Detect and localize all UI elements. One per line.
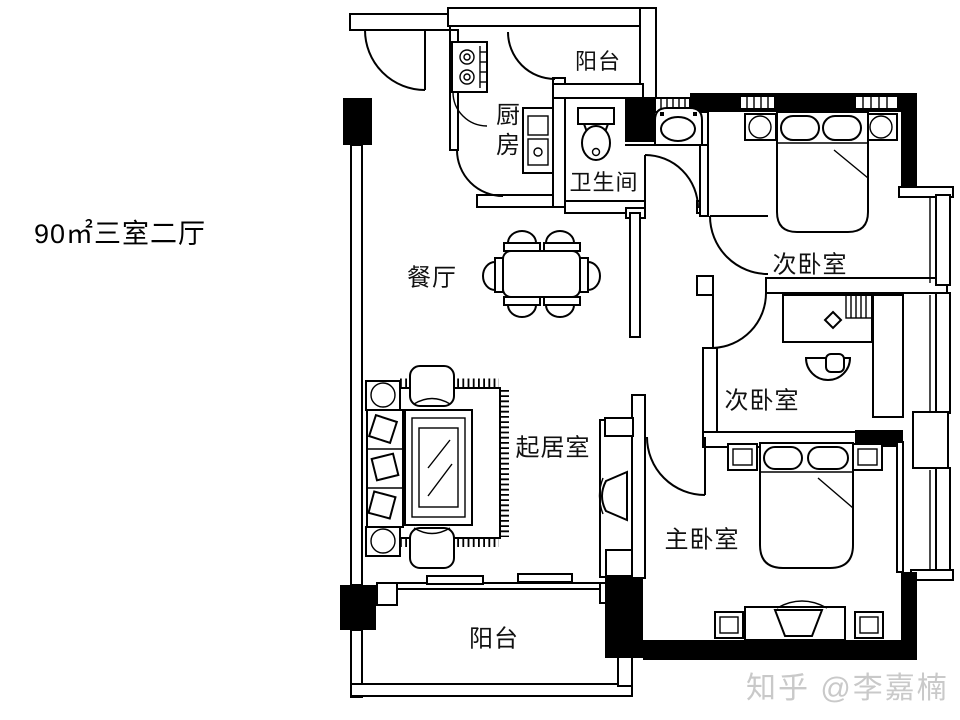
bay-window (936, 195, 950, 285)
pillow (808, 447, 848, 469)
watermark: 知乎 @李嘉楠 (746, 663, 949, 707)
master-bottom-wall (643, 640, 917, 660)
entry-header-wall (350, 14, 450, 30)
room-label-bedroom-second-top: 次卧室 (773, 245, 848, 280)
pillow (764, 447, 802, 469)
armchair (410, 366, 454, 406)
sliding-door-panel (518, 574, 572, 582)
pillow (823, 116, 861, 140)
stool (715, 612, 743, 638)
master-bedroom-door (647, 437, 705, 495)
armchair (410, 528, 454, 568)
bay-window (936, 293, 950, 413)
dining-table (503, 251, 580, 297)
toilet (578, 108, 614, 160)
bedroom-second-mid-door (713, 293, 766, 348)
chair (546, 305, 574, 317)
sliding-door-panel (427, 576, 483, 584)
chair (588, 262, 600, 290)
coffee-table (405, 410, 472, 525)
room-label-living: 起居室 (516, 428, 591, 463)
kitchen-balcony-door (508, 32, 555, 79)
bedroom-second-top-door (710, 216, 768, 274)
sliding-door-track (377, 583, 605, 589)
bedroom-second-top-furniture (745, 112, 897, 232)
stove (452, 42, 487, 92)
floor-plan-drawing (0, 0, 960, 720)
chair (546, 231, 574, 243)
living-room-furniture (366, 366, 633, 577)
sofa (366, 381, 403, 556)
room-label-kitchen: 厨房 (488, 102, 523, 162)
cushion (372, 454, 399, 481)
room-label-master-bedroom: 主卧室 (665, 520, 740, 555)
room-label-bathroom: 卫生间 (569, 165, 638, 197)
pillar (605, 578, 643, 658)
stool (855, 612, 883, 638)
wardrobe (873, 295, 903, 417)
dining-set (483, 231, 600, 317)
pillar (340, 585, 376, 630)
chair (508, 231, 536, 243)
page-title: 90㎡三室二厅 (34, 212, 206, 251)
pillar (343, 98, 372, 145)
bedroom-second-mid-furniture (783, 295, 903, 417)
room-label-dining: 餐厅 (407, 258, 457, 293)
chair (483, 262, 495, 290)
floor-plan-page: 90㎡三室二厅 厨房 阳台 卫生间 次卧室 次卧室 主卧室 餐厅 起居室 阳台 … (0, 0, 960, 720)
chair (508, 305, 536, 317)
dresser (745, 601, 845, 640)
room-label-balcony-bottom: 阳台 (469, 619, 519, 654)
pillar (625, 98, 655, 142)
entry-door (365, 30, 425, 90)
cushion (369, 492, 396, 519)
master-bedroom-furniture (715, 443, 883, 640)
room-label-bedroom-second-mid: 次卧室 (725, 381, 800, 416)
room-label-balcony-top: 阳台 (575, 44, 621, 76)
pillow (781, 116, 819, 140)
left-window (351, 145, 362, 585)
desk-chair (806, 354, 850, 380)
bathroom-door (645, 155, 698, 208)
pillar (901, 112, 917, 192)
bay-window (936, 468, 950, 572)
